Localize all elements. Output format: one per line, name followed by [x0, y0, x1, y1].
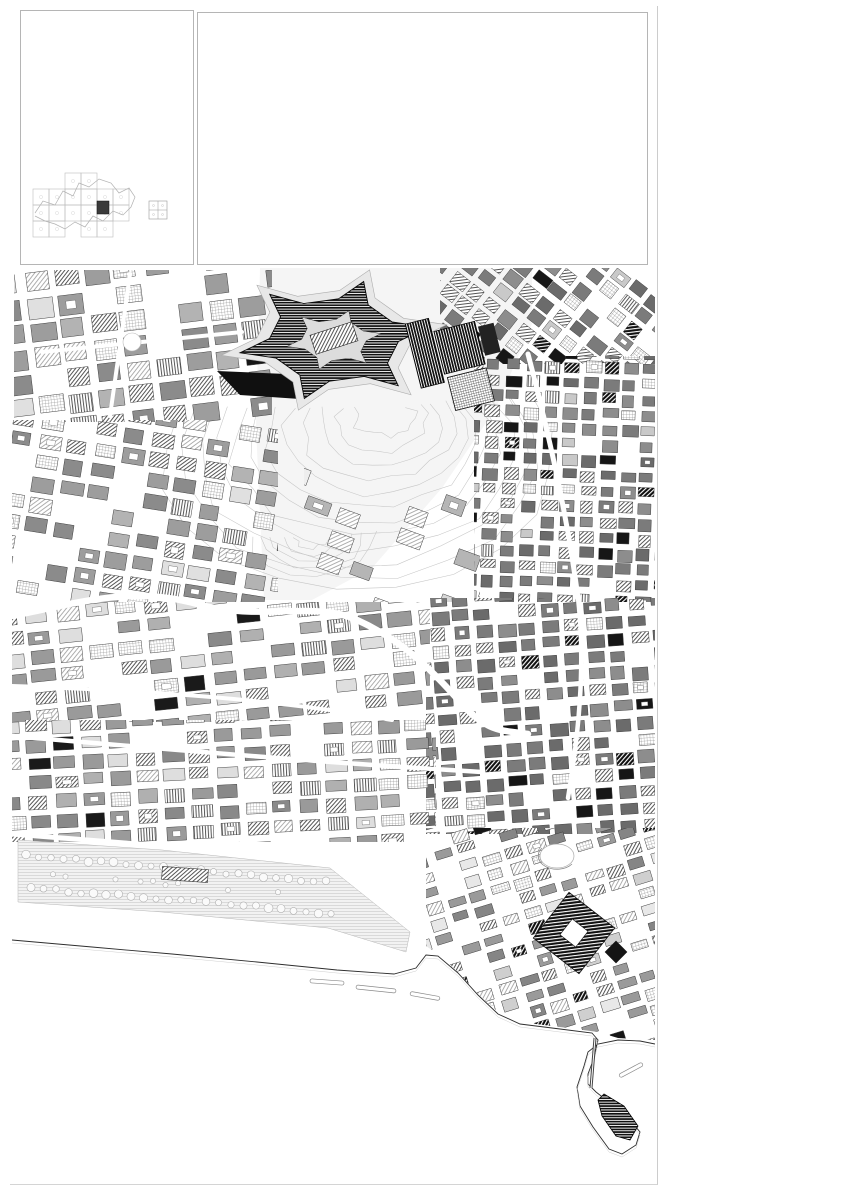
- sea: [12, 940, 655, 1182]
- folio-index-map: [29, 169, 185, 247]
- map-sheet: [0, 0, 841, 1190]
- piazza-vanvitelli: [123, 333, 141, 351]
- district-toledo-strip: [406, 578, 655, 864]
- villa-building: [162, 866, 209, 882]
- piazza-plebiscito: [540, 844, 574, 868]
- city-map: [12, 268, 655, 1182]
- legend: [197, 12, 648, 265]
- title-block: [20, 10, 194, 265]
